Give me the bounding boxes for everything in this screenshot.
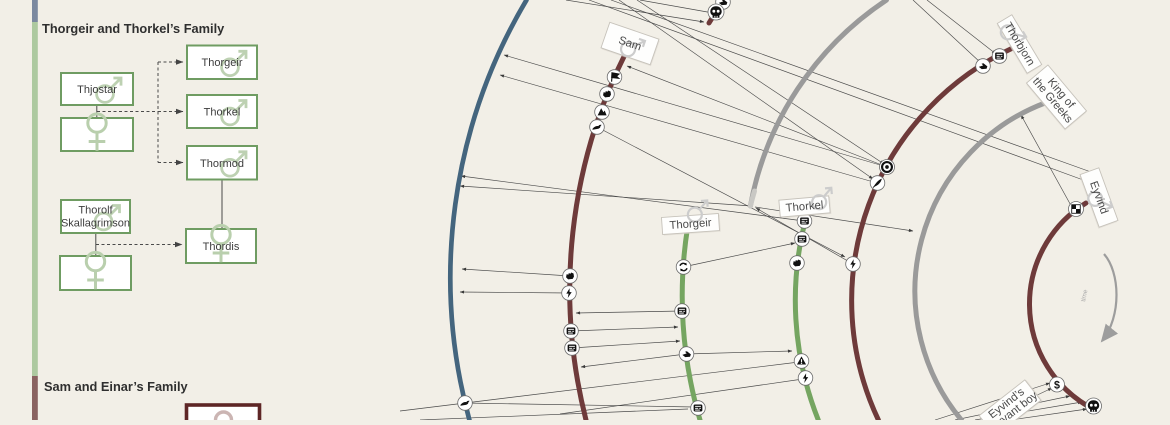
- svg-text:Thormod: Thormod: [200, 158, 244, 170]
- svg-text:Thorkel: Thorkel: [204, 107, 241, 119]
- svg-text:Thjostar: Thjostar: [77, 84, 117, 96]
- svg-text:Thorolf: Thorolf: [78, 205, 113, 217]
- svg-text:Sam and Einar’s Family: Sam and Einar’s Family: [44, 379, 189, 394]
- svg-text:$: $: [1054, 379, 1060, 391]
- svg-text:Thordis: Thordis: [203, 241, 240, 253]
- svg-text:Thorgeir: Thorgeir: [202, 57, 243, 69]
- svg-text:Skallagrimson: Skallagrimson: [61, 218, 130, 230]
- svg-text:Thorgeir and Thorkel’s Family: Thorgeir and Thorkel’s Family: [42, 21, 225, 36]
